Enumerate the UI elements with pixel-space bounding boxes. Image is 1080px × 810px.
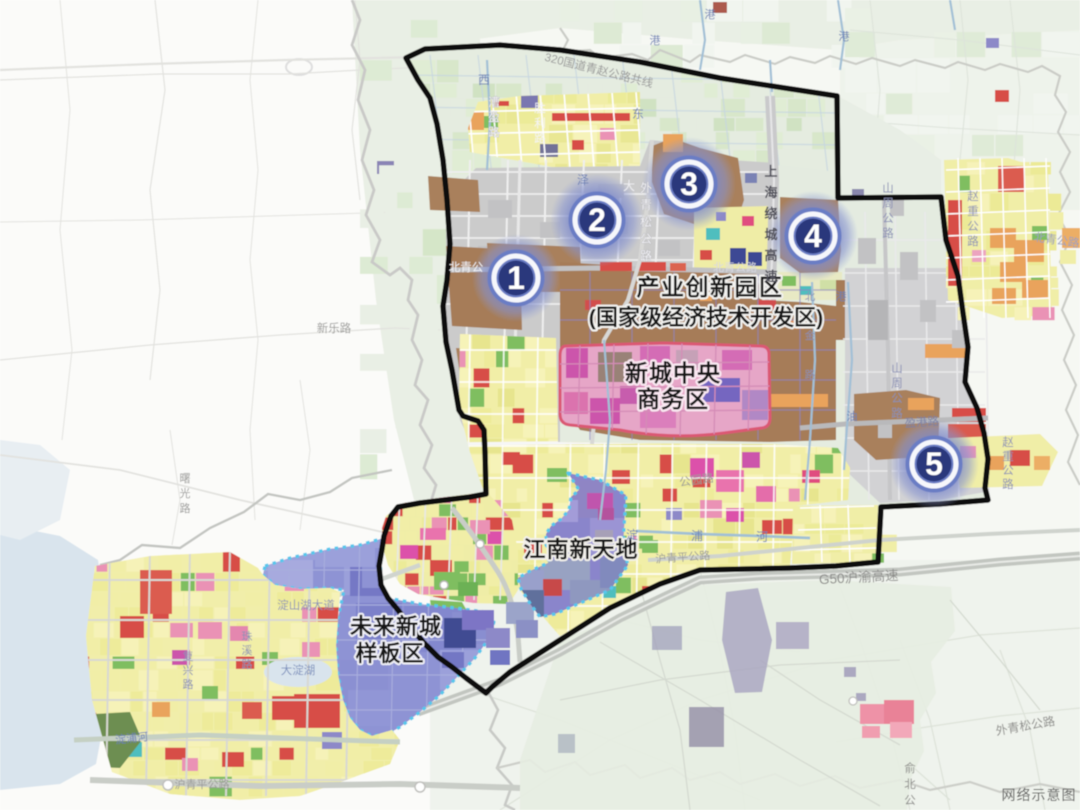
svg-text:未来新城: 未来新城 [350, 614, 442, 639]
svg-text:胜: 胜 [534, 101, 546, 115]
svg-text:港: 港 [650, 34, 661, 47]
svg-text:金: 金 [805, 329, 816, 342]
svg-text:北青公: 北青公 [449, 261, 484, 274]
svg-text:珠: 珠 [242, 629, 253, 643]
svg-text:盈: 盈 [488, 111, 500, 124]
svg-text:路: 路 [242, 658, 253, 671]
svg-text:河: 河 [756, 530, 768, 544]
svg-text:路: 路 [640, 248, 652, 263]
svg-text:曙: 曙 [180, 472, 191, 485]
svg-text:路: 路 [488, 125, 500, 139]
svg-text:复: 复 [183, 649, 194, 663]
svg-text:光: 光 [180, 486, 191, 500]
svg-text:路: 路 [891, 406, 903, 420]
svg-text:港: 港 [836, 290, 847, 303]
svg-text:西: 西 [478, 73, 490, 87]
svg-text:沪青平公路: 沪青平公路 [175, 777, 230, 791]
svg-text:俞: 俞 [904, 761, 916, 775]
svg-text:产业创新园区: 产业创新园区 [637, 274, 784, 300]
svg-text:漕: 漕 [488, 95, 500, 109]
svg-text:路: 路 [180, 502, 191, 515]
svg-text:淀山湖大道: 淀山湖大道 [277, 598, 335, 612]
svg-text:外: 外 [640, 181, 652, 195]
svg-text:青: 青 [640, 198, 652, 212]
svg-text:重: 重 [967, 204, 979, 218]
svg-text:路: 路 [1002, 477, 1014, 491]
svg-text:港: 港 [705, 8, 716, 21]
svg-text:新城中央: 新城中央 [625, 360, 721, 386]
svg-text:3: 3 [680, 166, 698, 202]
svg-text:重: 重 [1002, 449, 1014, 463]
svg-text:路: 路 [534, 131, 546, 145]
svg-text:浦: 浦 [691, 529, 703, 543]
svg-text:大淀湖: 大淀湖 [281, 663, 316, 677]
svg-text:速: 速 [764, 269, 777, 284]
svg-text:兴: 兴 [183, 664, 194, 677]
svg-text:4: 4 [804, 218, 822, 254]
svg-text:2: 2 [588, 202, 606, 238]
svg-text:东: 东 [632, 107, 644, 121]
svg-text:路: 路 [967, 234, 979, 248]
svg-text:绕: 绕 [764, 206, 777, 221]
svg-text:利: 利 [534, 117, 546, 130]
svg-text:公: 公 [1002, 464, 1014, 477]
svg-text:路: 路 [183, 678, 194, 691]
svg-text:新乐路: 新乐路 [317, 321, 352, 335]
svg-text:淀: 淀 [626, 528, 638, 542]
svg-text:高: 高 [764, 248, 777, 263]
svg-text:赵: 赵 [1002, 435, 1014, 449]
svg-text:路: 路 [805, 368, 816, 381]
svg-text:北: 北 [904, 778, 916, 791]
svg-text:港: 港 [839, 30, 850, 43]
svg-text:公: 公 [882, 212, 894, 225]
svg-text:1: 1 [507, 260, 525, 296]
svg-text:上: 上 [764, 164, 777, 179]
svg-text:溪: 溪 [242, 644, 253, 657]
svg-text:商务区: 商务区 [637, 386, 709, 412]
svg-text:路: 路 [882, 226, 894, 240]
svg-text:公: 公 [640, 232, 652, 246]
svg-text:公: 公 [904, 794, 916, 807]
svg-text:网络示意图: 网络示意图 [1002, 787, 1077, 803]
svg-text:5: 5 [925, 446, 943, 482]
svg-text:北青公路: 北青公路 [713, 261, 757, 274]
svg-text:山: 山 [882, 182, 894, 195]
svg-text:油: 油 [847, 409, 858, 423]
svg-text:样板区: 样板区 [355, 641, 424, 666]
svg-text:周: 周 [891, 377, 903, 390]
svg-text:泽: 泽 [577, 173, 589, 187]
svg-text:北: 北 [805, 291, 816, 303]
svg-text:(国家级经济技术开发区): (国家级经济技术开发区) [589, 305, 824, 330]
svg-text:城: 城 [764, 227, 777, 242]
svg-text:公: 公 [891, 392, 903, 405]
svg-text:大: 大 [623, 179, 635, 193]
svg-text:江南新天地: 江南新天地 [523, 537, 638, 562]
svg-text:赵: 赵 [967, 189, 979, 203]
svg-text:海: 海 [764, 185, 777, 200]
svg-text:周: 周 [882, 197, 894, 210]
svg-text:松: 松 [640, 215, 652, 229]
svg-text:山: 山 [891, 362, 903, 375]
svg-text:公: 公 [967, 220, 979, 233]
